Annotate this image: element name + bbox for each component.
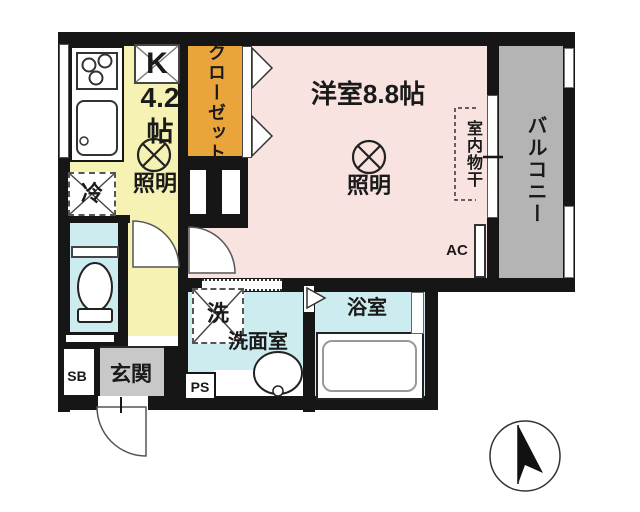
washroom-label: 洗面室 bbox=[214, 330, 302, 354]
washer-label: 洗 bbox=[192, 294, 244, 334]
wall-bath-right bbox=[425, 278, 438, 410]
shoe-box-label: SB bbox=[62, 366, 92, 386]
washroom-sink-area bbox=[214, 370, 304, 398]
balcony-window bbox=[487, 95, 498, 218]
room-toilet bbox=[68, 222, 120, 334]
entrance-label: 玄関 bbox=[100, 360, 162, 388]
closet-door-track bbox=[242, 46, 252, 158]
indoor-drying-label: 室内物干 bbox=[458, 106, 486, 202]
hallway bbox=[126, 215, 180, 338]
bathroom-door-gap bbox=[304, 286, 314, 312]
bathtub-inner bbox=[322, 340, 417, 392]
kitchen-window bbox=[59, 44, 69, 158]
nook-cavity-right bbox=[222, 170, 240, 214]
bathroom-label: 浴室 bbox=[334, 296, 400, 320]
wall-toilet-right bbox=[118, 215, 128, 346]
balcony-rail-gap-bottom bbox=[564, 206, 574, 278]
closet-label: クローゼット bbox=[197, 52, 235, 154]
nook-cavity-left bbox=[190, 170, 206, 214]
bath-counter bbox=[411, 292, 424, 334]
toilet-shelf bbox=[71, 246, 119, 258]
entrance-door-arc bbox=[97, 407, 146, 456]
balcony-rail-gap-top bbox=[564, 48, 574, 88]
stove-icon bbox=[76, 52, 118, 90]
kitchen-size-label: 4.2 bbox=[132, 82, 188, 114]
pipe-space-label: PS bbox=[184, 377, 216, 397]
main-room-label: 洋室8.8帖 bbox=[288, 78, 448, 110]
lighting-label-kitchen: 照明 bbox=[124, 171, 186, 197]
toilet-bottom-slit bbox=[66, 335, 114, 342]
refrigerator-label: 冷 bbox=[68, 178, 116, 210]
kitchen-type-label: K bbox=[134, 46, 180, 82]
kitchen-sink-icon bbox=[76, 100, 118, 156]
entrance-door-gap bbox=[98, 396, 148, 410]
north-compass-icon bbox=[490, 421, 560, 491]
ac-unit bbox=[474, 224, 486, 278]
floor-plan: K 4.2 帖 クローゼット 洋室8.8帖 照明 照明 冷 室内物干 バルコニー… bbox=[0, 0, 640, 512]
ac-label: AC bbox=[442, 240, 472, 260]
kitchen-unit-label: 帖 bbox=[132, 114, 188, 150]
balcony-label: バルコニー bbox=[519, 98, 551, 242]
lighting-label-room: 照明 bbox=[338, 173, 400, 199]
